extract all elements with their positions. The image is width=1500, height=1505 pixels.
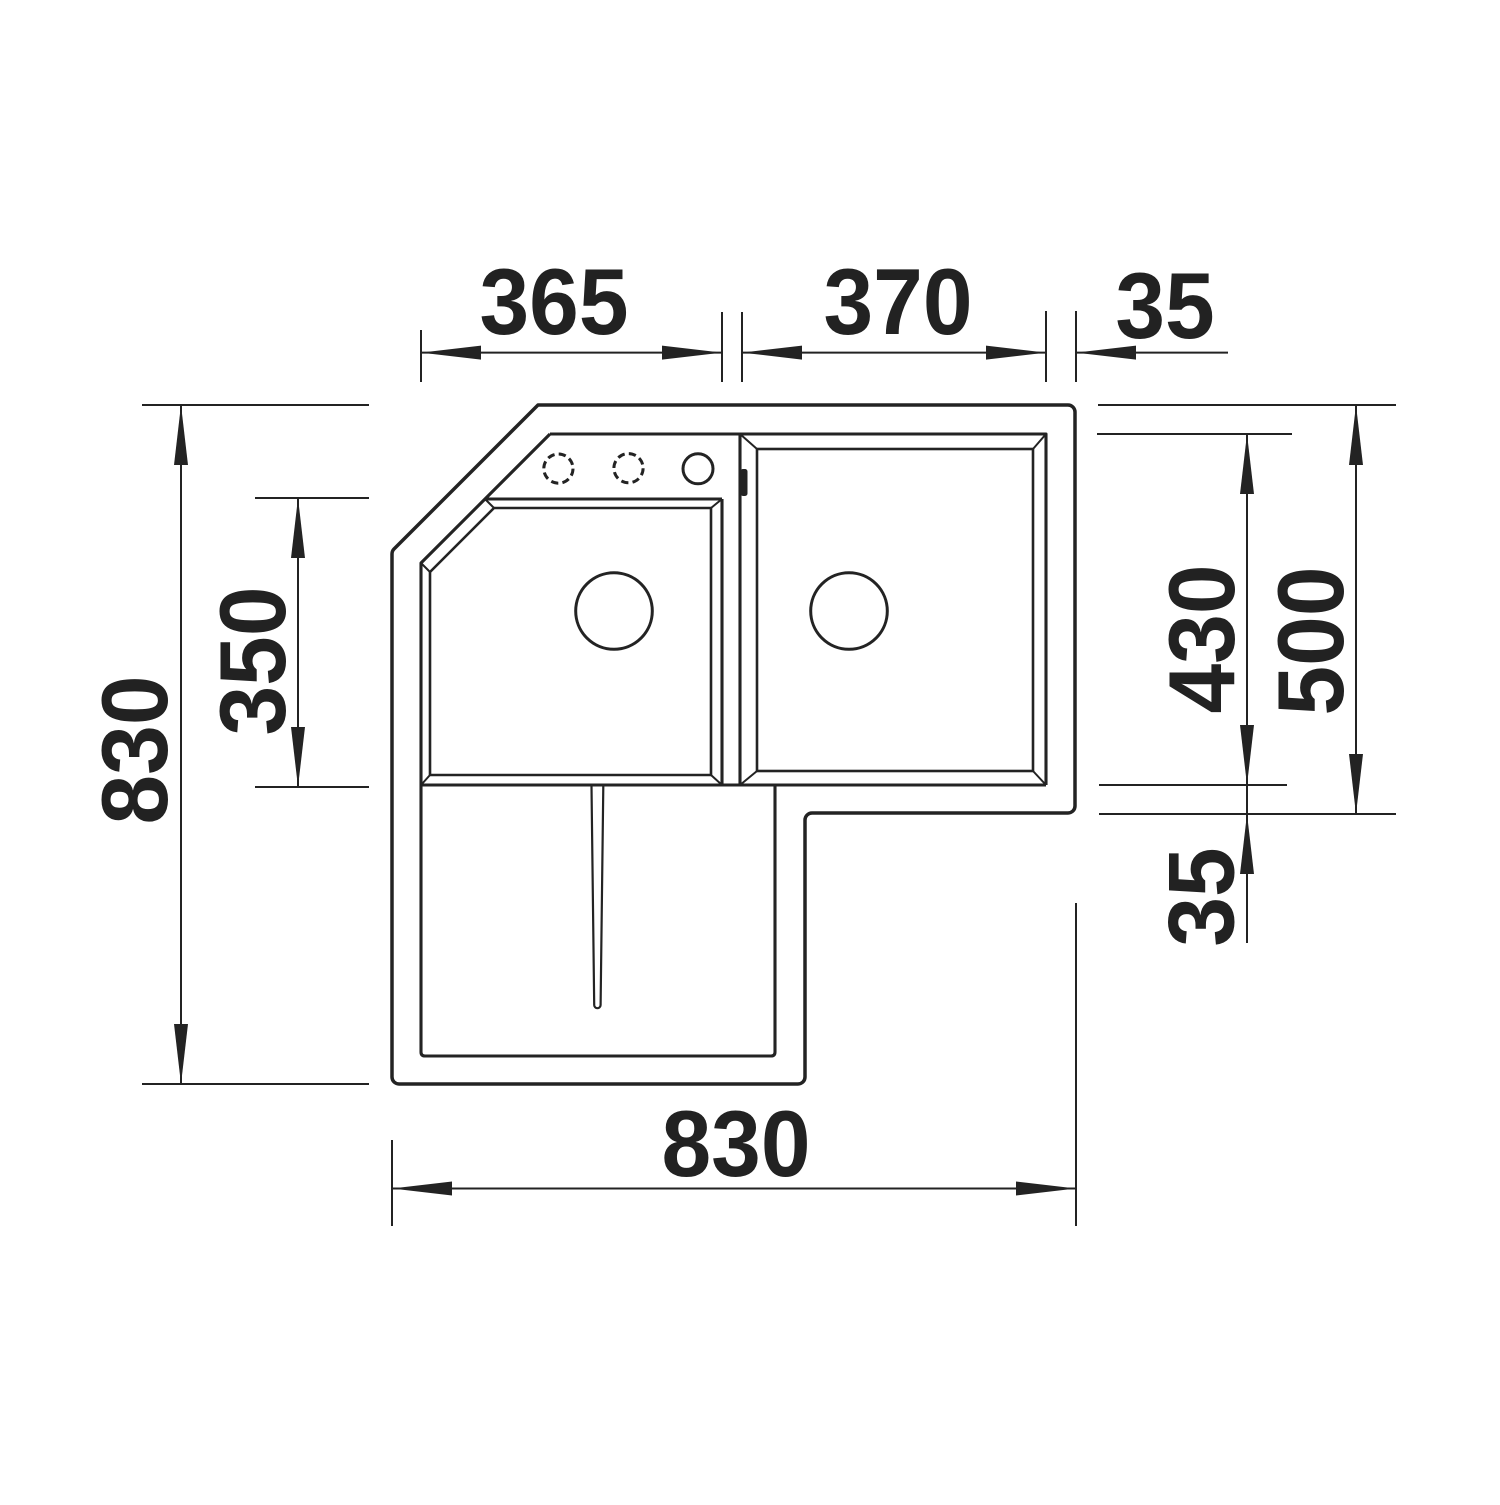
svg-text:365: 365 — [480, 250, 629, 355]
svg-text:830: 830 — [83, 676, 188, 825]
svg-text:350: 350 — [201, 587, 306, 736]
svg-text:430: 430 — [1150, 565, 1255, 714]
svg-text:35: 35 — [1115, 254, 1214, 359]
svg-text:830: 830 — [662, 1092, 811, 1197]
svg-text:370: 370 — [824, 250, 973, 355]
svg-text:35: 35 — [1149, 847, 1254, 946]
svg-text:500: 500 — [1259, 567, 1364, 716]
